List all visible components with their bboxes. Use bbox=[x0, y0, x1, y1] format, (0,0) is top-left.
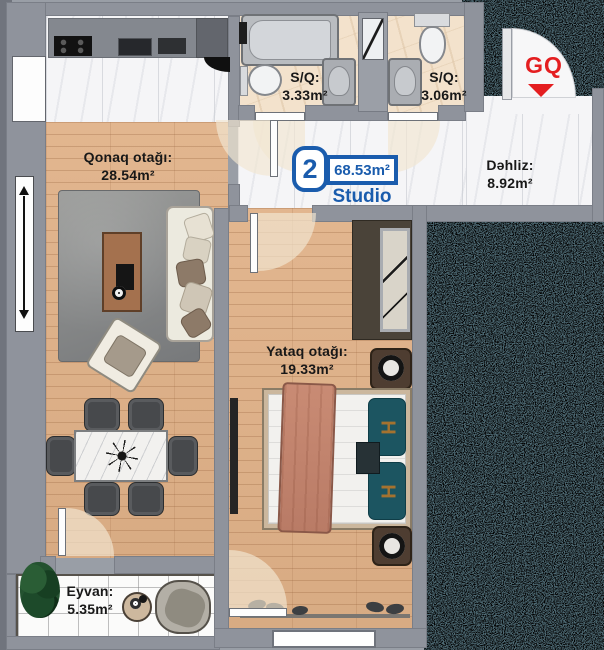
lamp bbox=[378, 355, 404, 381]
radiator-arrow-icon bbox=[19, 186, 29, 195]
dining-chair bbox=[84, 482, 120, 516]
table-lamp bbox=[112, 286, 126, 300]
room-name: Eyvan: bbox=[66, 583, 113, 599]
wall bbox=[6, 636, 220, 650]
shower-door bbox=[362, 18, 384, 60]
kitchen-appliance bbox=[158, 38, 186, 54]
door-leaf bbox=[270, 120, 278, 177]
wall bbox=[438, 105, 466, 121]
wall bbox=[229, 205, 248, 222]
room-label-balcony: Eyvan: 5.35m² bbox=[50, 582, 130, 618]
wall bbox=[214, 208, 229, 648]
wall-tv bbox=[230, 398, 238, 514]
room-area: 3.33m² bbox=[282, 87, 328, 103]
door-leaf bbox=[388, 112, 438, 121]
wall bbox=[238, 105, 255, 121]
bathtub-basin bbox=[249, 20, 331, 60]
unit-number: 2 bbox=[302, 154, 317, 185]
side-table-item bbox=[139, 595, 147, 603]
wall bbox=[592, 88, 604, 222]
pillow-monogram: H bbox=[375, 420, 398, 434]
room-label-bathroom1: S/Q: 3.33m² bbox=[262, 68, 348, 104]
dining-chair bbox=[168, 436, 198, 476]
wall bbox=[114, 556, 216, 574]
room-area: 3.06m² bbox=[421, 87, 467, 103]
wall bbox=[412, 205, 427, 648]
door-leaf bbox=[250, 213, 258, 273]
room-label-bedroom: Yataq otağı: 19.33m² bbox=[237, 342, 377, 378]
toilet-tank bbox=[414, 13, 450, 27]
room-label-living: Qonaq otağı: 28.54m² bbox=[48, 148, 208, 184]
room-label-hallway: Dəhliz: 8.92m² bbox=[452, 156, 568, 192]
room-area: 28.54m² bbox=[101, 167, 155, 183]
door-leaf bbox=[229, 608, 287, 617]
radiator-arrow-icon bbox=[19, 310, 29, 319]
table-centerpiece bbox=[106, 440, 138, 472]
window bbox=[12, 56, 46, 122]
dining-chair bbox=[84, 398, 120, 432]
unit-type: Studio bbox=[332, 186, 391, 207]
kitchen-tall-cabinet bbox=[196, 18, 228, 58]
logo-text: GQ bbox=[525, 52, 563, 78]
dining-chair bbox=[128, 482, 164, 516]
pillow-monogram: H bbox=[375, 484, 398, 498]
kitchen-sink bbox=[118, 38, 152, 56]
cooktop bbox=[54, 36, 92, 56]
unit-area-badge: 68.53m² bbox=[326, 155, 398, 185]
room-name: Qonaq otağı: bbox=[84, 149, 173, 165]
toilet-bowl bbox=[419, 26, 446, 64]
logo: GQ bbox=[512, 52, 576, 79]
entrance-threshold bbox=[502, 96, 582, 114]
room-name: S/Q: bbox=[290, 69, 320, 85]
room-area: 5.35m² bbox=[67, 601, 113, 617]
unit-number-badge: 2 bbox=[292, 146, 328, 192]
room-area: 8.92m² bbox=[487, 175, 533, 191]
wardrobe-mirror bbox=[380, 228, 410, 332]
radiator-line bbox=[23, 196, 25, 312]
room-name: Dəhliz: bbox=[486, 157, 533, 173]
blanket bbox=[277, 382, 336, 534]
dining-chair bbox=[46, 436, 76, 476]
room-name: Yataq otağı: bbox=[266, 343, 348, 359]
entrance-door-leaf bbox=[502, 28, 512, 100]
room-area: 19.33m² bbox=[280, 361, 334, 377]
room-name: S/Q: bbox=[429, 69, 459, 85]
washing-machine bbox=[239, 22, 247, 44]
door-leaf bbox=[58, 508, 66, 556]
entrance-arrow-icon bbox=[528, 84, 554, 97]
dining-chair bbox=[128, 398, 164, 432]
unit-type-label: Studio bbox=[326, 186, 398, 208]
unit-total-area: 68.53m² bbox=[334, 162, 390, 179]
room-label-bathroom2: S/Q: 3.06m² bbox=[404, 68, 484, 104]
floor-plan: H H GQ Qonaq otağı: 28.54m² S/Q: 3.33m² … bbox=[0, 0, 604, 650]
lamp bbox=[379, 533, 405, 559]
bedroom-window bbox=[272, 630, 376, 648]
toilet bbox=[240, 66, 248, 96]
bed-tray bbox=[356, 442, 380, 474]
